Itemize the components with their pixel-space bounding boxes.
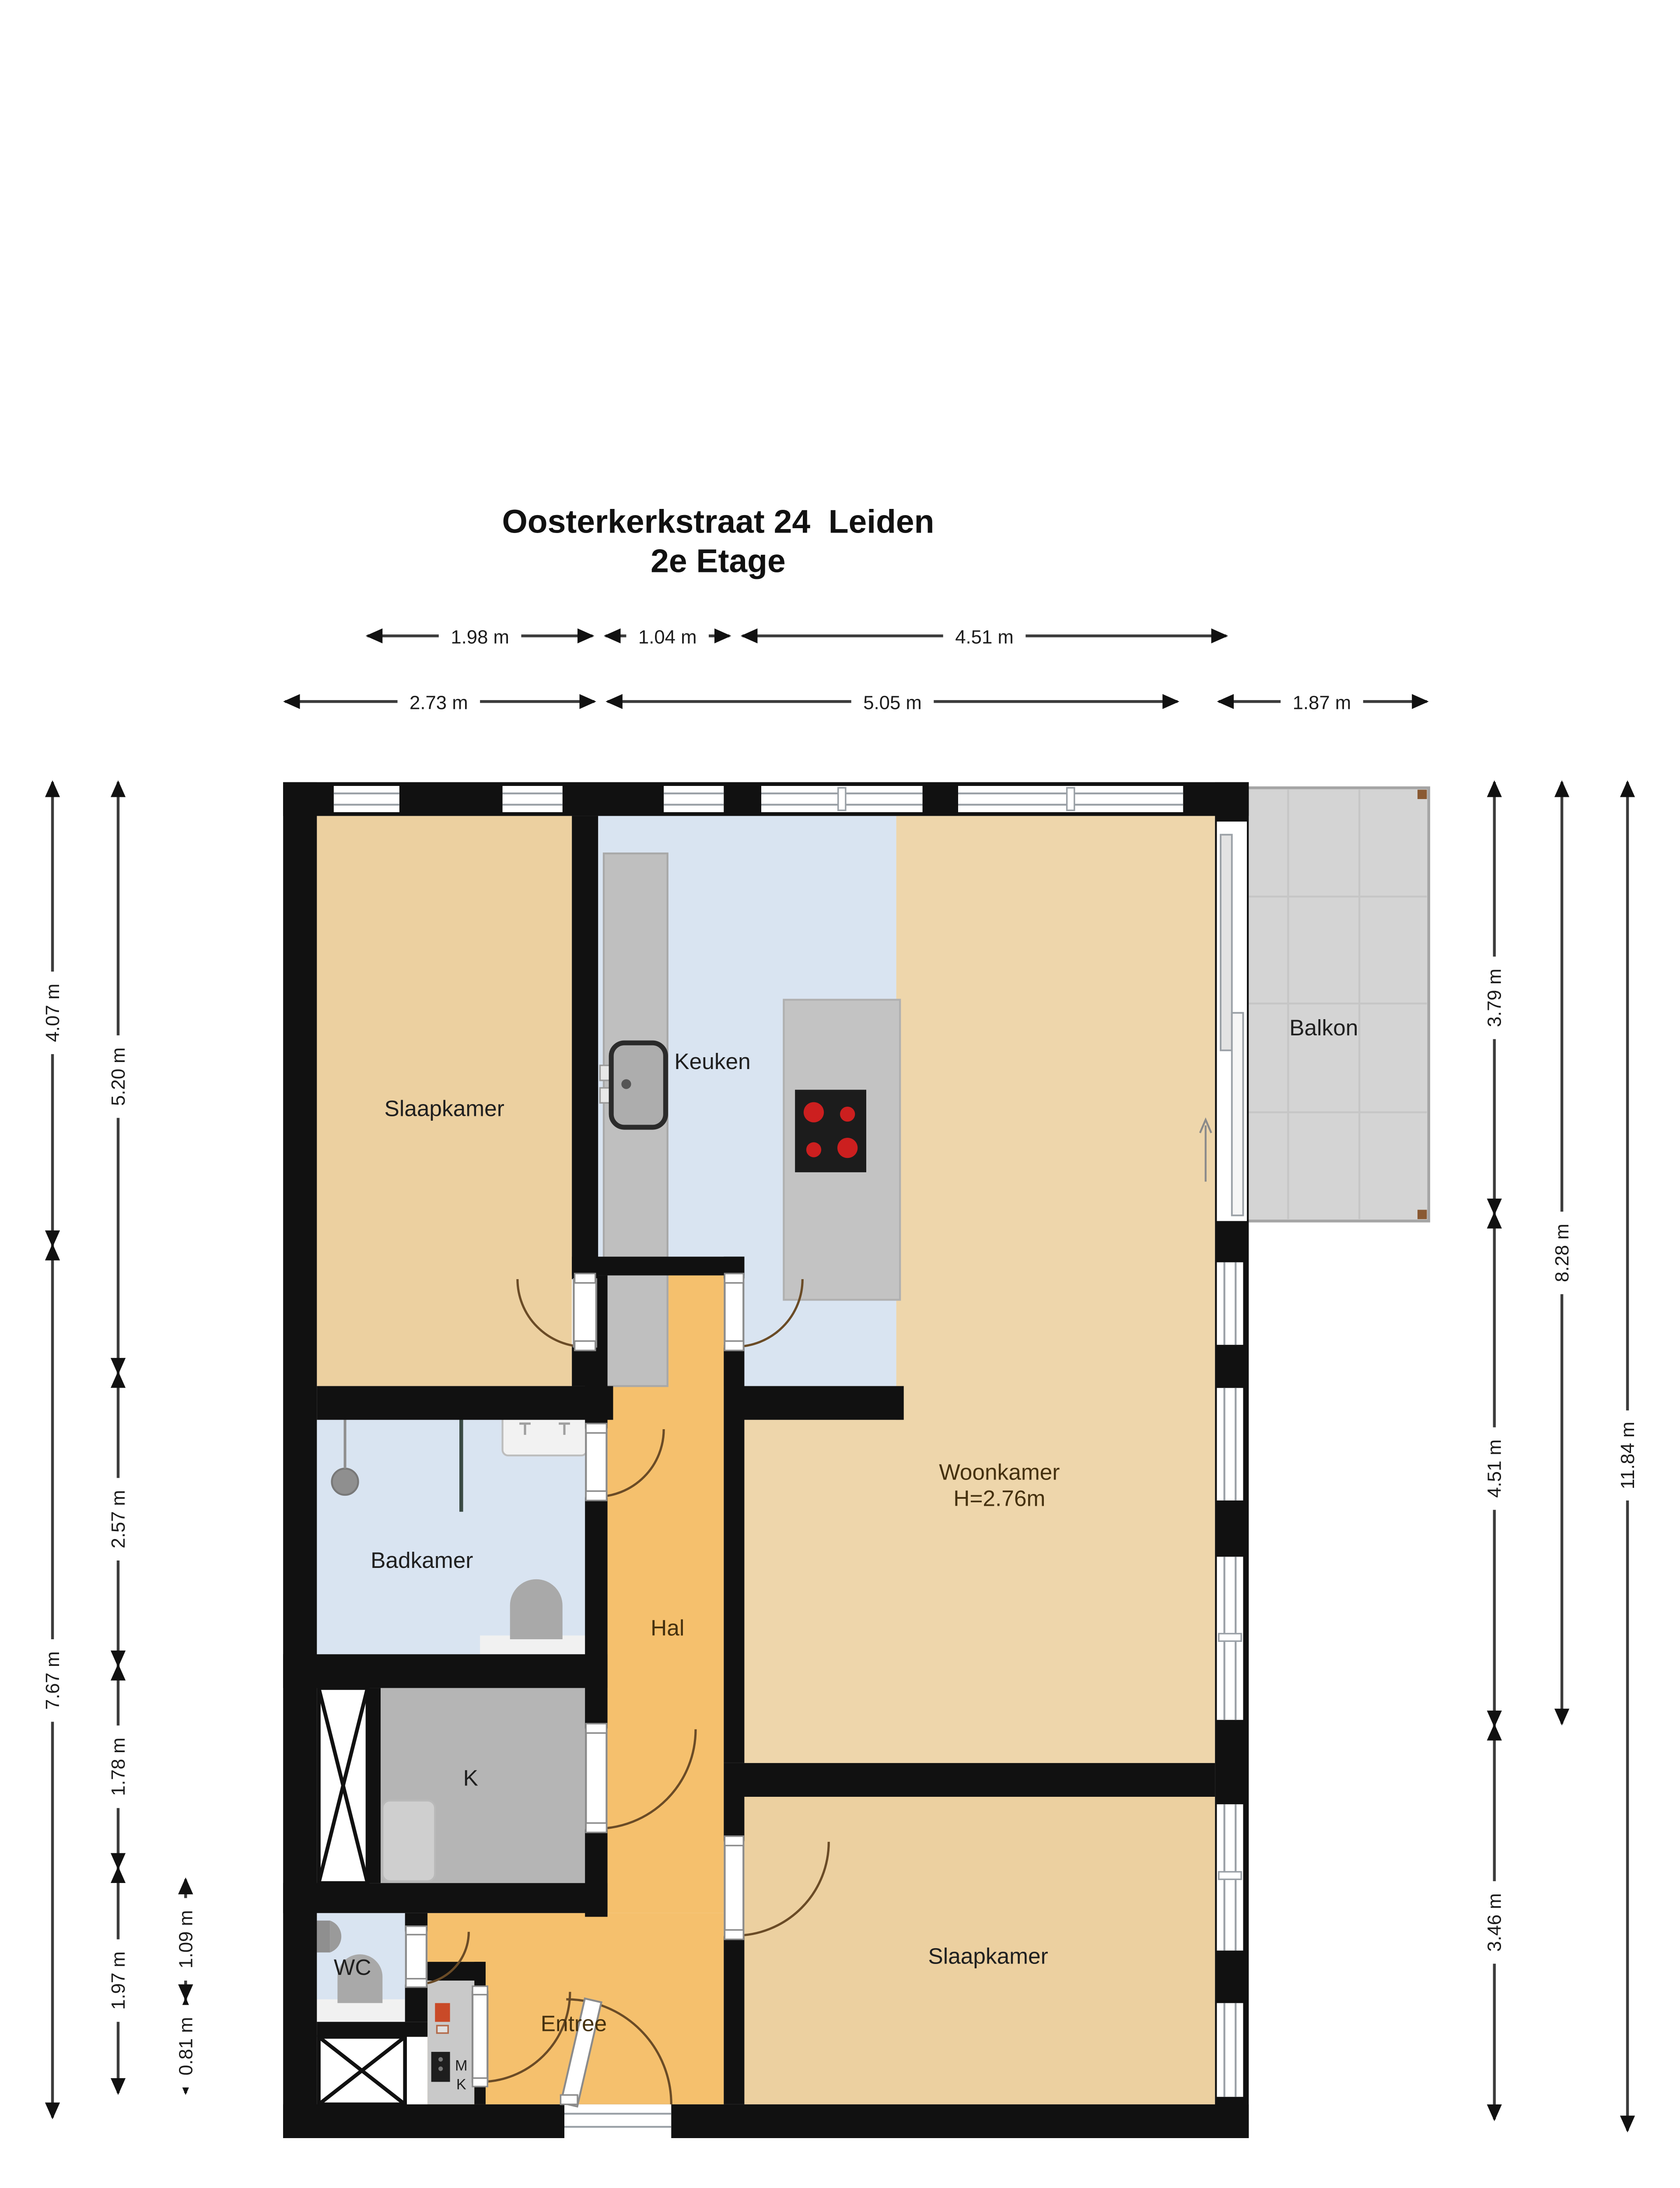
dim-label: 0.81 m — [175, 2017, 196, 2076]
dim-label: 7.67 m — [42, 1651, 63, 1710]
dim-label: 1.87 m — [1293, 692, 1351, 713]
wall-wc-right-lower — [405, 1985, 427, 2022]
dim-label: 3.79 m — [1484, 968, 1505, 1027]
wall-wc-bottom — [317, 2022, 427, 2037]
window — [1217, 1388, 1243, 1501]
meterkast-floor — [427, 1981, 474, 2104]
washbasin-icon — [503, 1414, 587, 1455]
wall-hal-right-c — [724, 1797, 744, 1842]
dim-label: 4.51 m — [955, 626, 1014, 648]
window — [1217, 1804, 1243, 1950]
wall-bottom — [283, 2104, 1249, 2138]
wall-slaapkamer1-keuken — [572, 816, 598, 1280]
window — [1217, 1557, 1243, 1720]
badkamer-label: Badkamer — [371, 1547, 473, 1573]
keuken-label: Keuken — [674, 1048, 750, 1074]
title-block: Oosterkerkstraat 24 Leiden 2e Etage — [502, 503, 934, 579]
dim-label: 4.07 m — [42, 984, 63, 1042]
dim-label: 2.73 m — [409, 692, 468, 713]
hal-label: Hal — [651, 1615, 684, 1640]
dim-label: 5.20 m — [108, 1047, 129, 1106]
dim-label: 2.57 m — [108, 1490, 129, 1549]
dim-label: 1.98 m — [451, 626, 509, 648]
wall-badkamer-top — [317, 1386, 613, 1420]
wc-label: WC — [334, 1954, 371, 1980]
wall-badkamer-bottom — [283, 1654, 607, 1688]
kast-label: K — [463, 1765, 478, 1790]
wall-hal-right-d — [724, 1936, 744, 2104]
wall-left — [283, 782, 317, 2138]
window — [664, 786, 724, 812]
balkon-area — [1219, 788, 1429, 1221]
slaapkamer2-label: Slaapkamer — [928, 1943, 1048, 1968]
woonkamer-label: Woonkamer — [939, 1459, 1060, 1485]
window — [334, 786, 399, 812]
wall-woonkamer-slaapkamer2 — [724, 1763, 1215, 1797]
wall-keuken-hal — [572, 1257, 744, 1276]
meter-red-icon — [435, 2003, 450, 2022]
dim-label: 5.05 m — [863, 692, 922, 713]
dim-label: 11.84 m — [1617, 1422, 1638, 1490]
slaapkamer1-label: Slaapkamer — [385, 1095, 504, 1121]
floor-plan-sheet: Oosterkerkstraat 24 Leiden 2e Etage — [0, 0, 1680, 2188]
dim-label: 8.28 m — [1551, 1224, 1573, 1282]
page-subtitle: 2e Etage — [651, 542, 786, 579]
window — [1217, 1262, 1243, 1345]
window — [958, 786, 1183, 812]
meterkast-label-m: M — [455, 2058, 468, 2074]
meterkast-label-k: K — [456, 2076, 466, 2093]
wall-keuken-woonkamer — [739, 1386, 904, 1420]
balkon-label: Balkon — [1289, 1015, 1358, 1040]
dim-label: 1.97 m — [108, 1951, 129, 2010]
window — [1217, 2003, 1243, 2097]
window — [761, 786, 923, 812]
entree-label: Entree — [541, 2011, 607, 2036]
dim-label: 1.09 m — [175, 1910, 196, 1969]
wall-kast-bottom — [283, 1883, 607, 1913]
dim-label: 3.46 m — [1484, 1893, 1505, 1952]
cooktop-icon — [795, 1090, 866, 1172]
balkon-corner-mark — [1417, 790, 1427, 799]
wall-hal-right-b — [724, 1345, 744, 1763]
page-title: Oosterkerkstraat 24 Leiden — [502, 503, 934, 540]
kitchen-sink-icon — [600, 1043, 665, 1127]
shower-drain-icon — [332, 1469, 358, 1495]
dim-label: 4.51 m — [1484, 1439, 1505, 1498]
dim-label: 1.04 m — [638, 626, 697, 648]
wall-shaft-kast — [367, 1688, 381, 1883]
dim-label: 1.78 m — [108, 1738, 129, 1796]
woonkamer-height-label: H=2.76m — [953, 1486, 1045, 1511]
boiler-icon — [382, 1801, 435, 1881]
balkon-corner-mark — [1417, 1210, 1427, 1219]
wall-hal-left-mid — [585, 1497, 607, 1729]
window — [503, 786, 563, 812]
